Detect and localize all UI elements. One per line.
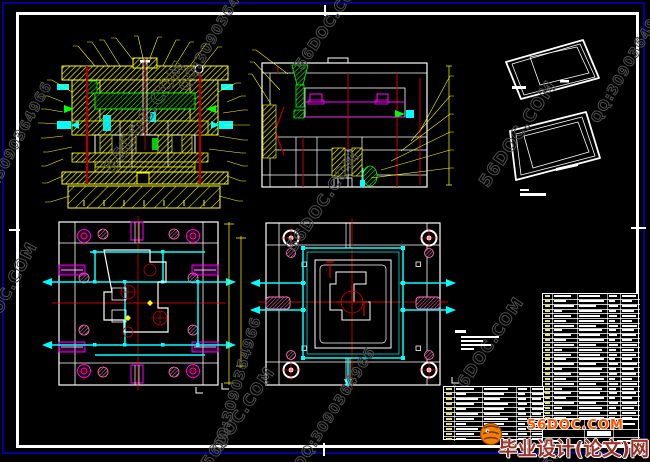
table-cell-text bbox=[484, 398, 500, 400]
table-cell-text bbox=[609, 339, 615, 341]
table-cell-text bbox=[622, 329, 634, 331]
row-index-mark bbox=[545, 329, 550, 331]
table-cell-text bbox=[622, 368, 634, 370]
table-cell-text bbox=[554, 397, 566, 399]
table-cell-text bbox=[554, 315, 571, 317]
table-cell-text bbox=[622, 325, 637, 327]
row-index-mark bbox=[545, 402, 550, 404]
table-cell-text bbox=[484, 388, 508, 390]
table-cell-text bbox=[579, 407, 602, 409]
table-column-line bbox=[454, 387, 455, 441]
table-cell-text bbox=[609, 412, 617, 414]
table-cell-text bbox=[622, 320, 632, 322]
table-cell-text bbox=[579, 320, 604, 322]
caption-bar bbox=[520, 193, 546, 196]
table-cell-text bbox=[456, 423, 466, 425]
table-cell-text bbox=[609, 373, 617, 375]
table-cell-text bbox=[609, 383, 618, 385]
table-cell-text bbox=[579, 373, 600, 375]
table-cell-text bbox=[554, 295, 571, 297]
table-cell-text bbox=[554, 320, 566, 322]
row-index-mark bbox=[446, 408, 452, 410]
table-cell-text bbox=[456, 398, 478, 400]
table-cell-text bbox=[456, 433, 474, 435]
table-cell-text bbox=[622, 349, 634, 351]
table-cell-text bbox=[554, 329, 562, 331]
table-cell-text bbox=[518, 393, 525, 395]
row-index-mark bbox=[545, 295, 550, 297]
view-fixed-half-plan bbox=[250, 218, 459, 390]
row-index-mark bbox=[545, 407, 550, 409]
table-cell-text bbox=[579, 402, 596, 404]
view-part-isometric-bottom bbox=[510, 112, 600, 180]
row-index-mark bbox=[545, 325, 550, 327]
table-cell-text bbox=[579, 368, 602, 370]
table-cell-text bbox=[554, 334, 571, 336]
table-cell-text bbox=[518, 398, 526, 400]
row-index-mark bbox=[545, 310, 550, 312]
table-cell-text bbox=[622, 300, 632, 302]
table-cell-text bbox=[579, 358, 604, 360]
table-cell-text bbox=[456, 438, 466, 440]
table-cell-text bbox=[554, 368, 562, 370]
row-index-mark bbox=[545, 339, 550, 341]
row-index-mark bbox=[446, 393, 452, 395]
table-cell-text bbox=[579, 397, 604, 399]
table-cell-text bbox=[622, 402, 637, 404]
table-cell-text bbox=[609, 378, 615, 380]
table-cell-text bbox=[579, 300, 604, 302]
table-cell-text bbox=[609, 344, 618, 346]
row-index-mark bbox=[446, 413, 452, 415]
text-bar bbox=[461, 340, 483, 342]
table-cell-text bbox=[456, 413, 478, 415]
table-cell-text bbox=[622, 383, 637, 385]
table-cell-text bbox=[579, 412, 600, 414]
table-cell-text bbox=[518, 388, 527, 390]
table-cell-text bbox=[554, 412, 571, 414]
table-cell-text bbox=[579, 354, 600, 356]
caption-bar bbox=[520, 189, 529, 191]
table-cell-text bbox=[554, 388, 562, 390]
table-cell-text bbox=[622, 388, 634, 390]
text-bar bbox=[461, 336, 499, 338]
table-cell-text bbox=[579, 315, 600, 317]
table-cell-text bbox=[579, 392, 600, 394]
table-cell-text bbox=[609, 407, 616, 409]
table-cell-text bbox=[609, 388, 616, 390]
table-cell-text bbox=[554, 392, 571, 394]
table-cell-text bbox=[622, 397, 632, 399]
table-cell-text bbox=[622, 407, 634, 409]
table-cell-text bbox=[622, 358, 632, 360]
row-index-mark bbox=[545, 334, 550, 336]
table-cell-text bbox=[554, 358, 566, 360]
table-cell-text bbox=[579, 325, 596, 327]
view-side-section bbox=[248, 50, 454, 187]
table-cell-text bbox=[622, 310, 634, 312]
table-cell-text bbox=[609, 354, 617, 356]
table-cell-text bbox=[579, 329, 602, 331]
row-index-mark bbox=[545, 378, 550, 380]
table-cell-text bbox=[579, 339, 604, 341]
row-index-mark bbox=[545, 383, 550, 385]
row-index-mark bbox=[446, 433, 452, 435]
text-bar bbox=[455, 330, 466, 333]
row-index-mark bbox=[545, 373, 550, 375]
text-bar bbox=[461, 344, 491, 346]
row-index-mark bbox=[545, 397, 550, 399]
table-cell-text bbox=[609, 334, 617, 336]
table-cell-text bbox=[622, 295, 636, 297]
row-index-mark bbox=[446, 403, 452, 405]
table-cell-text bbox=[622, 334, 636, 336]
table-cell-text bbox=[554, 339, 566, 341]
row-index-mark bbox=[446, 388, 452, 390]
logo-site-url: 56DOC.COM bbox=[527, 418, 624, 433]
row-index-mark bbox=[446, 428, 452, 430]
table-cell-text bbox=[456, 428, 478, 430]
table-cell-text bbox=[609, 358, 615, 360]
table-cell-text bbox=[484, 403, 508, 405]
table-cell-text bbox=[532, 388, 543, 390]
table-cell-text bbox=[609, 329, 616, 331]
logo-site-name: 毕业设计(论文)网 bbox=[499, 434, 649, 461]
table-cell-text bbox=[518, 408, 525, 410]
table-cell-text bbox=[484, 408, 504, 410]
table-cell-text bbox=[518, 403, 527, 405]
table-cell-text bbox=[484, 413, 500, 415]
table-cell-text bbox=[609, 305, 618, 307]
table-cell-text bbox=[456, 388, 474, 390]
row-index-mark bbox=[545, 300, 550, 302]
row-index-mark bbox=[446, 423, 452, 425]
table-cell-text bbox=[554, 373, 571, 375]
table-cell-text bbox=[609, 363, 618, 365]
view-part-isometric-top bbox=[506, 40, 599, 99]
table-cell-text bbox=[622, 339, 632, 341]
table-cell-text bbox=[609, 402, 618, 404]
table-cell-text bbox=[456, 408, 466, 410]
table-cell-text bbox=[554, 310, 562, 312]
parts-list-table bbox=[542, 293, 639, 419]
text-bar bbox=[461, 348, 474, 350]
view-moving-half-plan bbox=[42, 216, 246, 393]
cad-drawing-sheet: 56DOC.COMQQ:3090364966QQ:309036496656DOC… bbox=[0, 0, 650, 462]
row-index-mark bbox=[545, 305, 550, 307]
table-cell-text bbox=[532, 403, 543, 405]
table-cell-text bbox=[532, 393, 543, 395]
table-cell-text bbox=[609, 295, 617, 297]
table-cell-text bbox=[622, 373, 636, 375]
table-cell-text bbox=[554, 300, 566, 302]
table-cell-text bbox=[579, 295, 600, 297]
table-cell-text bbox=[554, 383, 574, 385]
site-logo: 56DOC.COM 毕业设计(论文)网 bbox=[478, 420, 650, 462]
table-cell-text bbox=[609, 349, 616, 351]
row-index-mark bbox=[545, 412, 550, 414]
table-cell-text bbox=[622, 392, 636, 394]
table-cell-text bbox=[518, 413, 526, 415]
table-cell-text bbox=[484, 393, 504, 395]
table-cell-text bbox=[579, 310, 602, 312]
table-cell-text bbox=[579, 344, 596, 346]
table-cell-text bbox=[554, 305, 574, 307]
table-cell-text bbox=[622, 363, 637, 365]
table-cell-text bbox=[579, 378, 604, 380]
table-cell-text bbox=[609, 310, 616, 312]
view-mold-assembly-section bbox=[38, 36, 250, 208]
table-cell-text bbox=[622, 378, 632, 380]
row-index-mark bbox=[545, 315, 550, 317]
table-cell-text bbox=[609, 397, 615, 399]
table-cell-text bbox=[554, 378, 566, 380]
table-cell-text bbox=[622, 412, 636, 414]
table-cell-text bbox=[554, 363, 574, 365]
table-cell-text bbox=[579, 383, 596, 385]
table-cell-text bbox=[609, 368, 616, 370]
table-cell-text bbox=[554, 402, 574, 404]
table-cell-text bbox=[622, 344, 637, 346]
row-index-mark bbox=[545, 354, 550, 356]
table-cell-text bbox=[456, 418, 474, 420]
table-cell-text bbox=[579, 305, 596, 307]
row-index-mark bbox=[545, 363, 550, 365]
table-cell-text bbox=[579, 388, 602, 390]
table-cell-text bbox=[554, 349, 562, 351]
table-cell-text bbox=[532, 408, 543, 410]
row-index-mark bbox=[446, 438, 452, 440]
table-cell-text bbox=[554, 354, 571, 356]
row-index-mark bbox=[545, 392, 550, 394]
table-cell-text bbox=[609, 300, 615, 302]
table-cell-text bbox=[579, 334, 600, 336]
row-index-mark bbox=[545, 358, 550, 360]
table-cell-text bbox=[456, 403, 474, 405]
table-cell-text bbox=[532, 413, 541, 415]
table-cell-text bbox=[622, 315, 636, 317]
table-cell-text bbox=[609, 315, 617, 317]
table-cell-text bbox=[609, 392, 617, 394]
row-index-mark bbox=[446, 398, 452, 400]
row-index-mark bbox=[545, 320, 550, 322]
row-index-mark bbox=[545, 368, 550, 370]
row-index-mark bbox=[545, 349, 550, 351]
table-cell-text bbox=[622, 305, 637, 307]
table-cell-text bbox=[554, 344, 574, 346]
table-cell-text bbox=[532, 398, 541, 400]
table-cell-text bbox=[554, 407, 562, 409]
row-index-mark bbox=[446, 418, 452, 420]
row-index-mark bbox=[545, 344, 550, 346]
table-cell-text bbox=[609, 320, 615, 322]
table-cell-text bbox=[579, 349, 602, 351]
table-cell-text bbox=[456, 393, 466, 395]
table-cell-text bbox=[554, 325, 574, 327]
table-cell-text bbox=[609, 325, 618, 327]
row-index-mark bbox=[545, 388, 550, 390]
table-cell-text bbox=[579, 363, 596, 365]
table-cell-text bbox=[622, 354, 636, 356]
